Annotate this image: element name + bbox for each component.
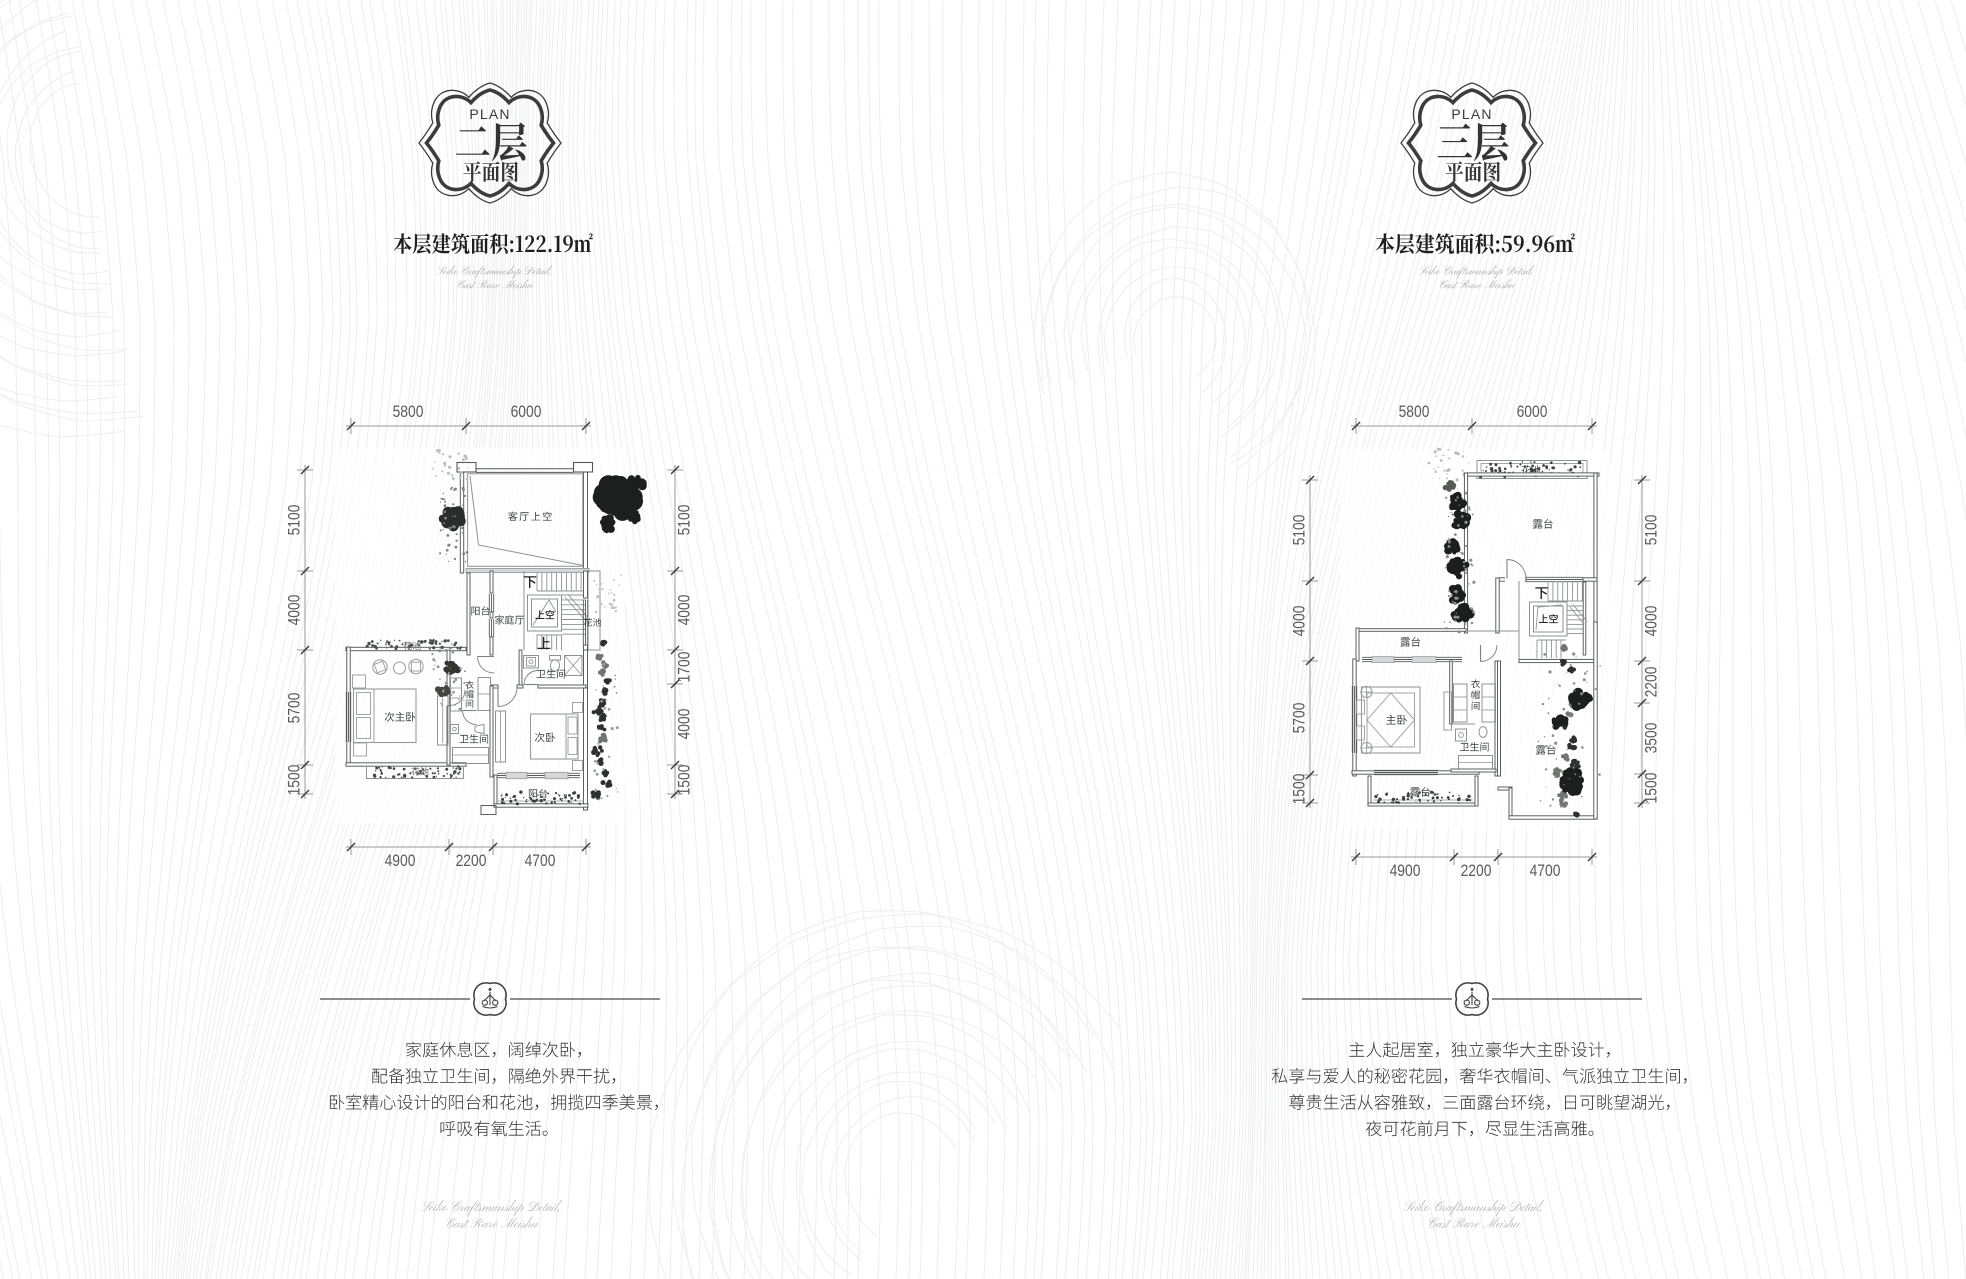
svg-text:4900: 4900: [385, 852, 416, 870]
svg-text:4700: 4700: [1530, 862, 1561, 880]
svg-text:5100: 5100: [285, 505, 303, 536]
svg-text:5100: 5100: [1642, 515, 1660, 546]
svg-text:5700: 5700: [285, 693, 303, 724]
svg-text:PLAN: PLAN: [469, 106, 510, 122]
svg-text:1500: 1500: [1290, 774, 1308, 805]
svg-text:1700: 1700: [675, 652, 693, 683]
svg-text:1500: 1500: [1642, 773, 1660, 804]
svg-text:4000: 4000: [1642, 606, 1660, 637]
svg-text:4000: 4000: [675, 709, 693, 740]
svg-text:4000: 4000: [1290, 606, 1308, 637]
svg-text:1500: 1500: [675, 765, 693, 796]
svg-text:5800: 5800: [393, 403, 424, 421]
svg-text:4000: 4000: [675, 595, 693, 626]
svg-text:5100: 5100: [1290, 515, 1308, 546]
svg-text:2200: 2200: [456, 852, 487, 870]
svg-text:1500: 1500: [285, 765, 303, 796]
svg-text:5700: 5700: [1290, 703, 1308, 734]
svg-text:5800: 5800: [1399, 403, 1430, 421]
svg-text:4900: 4900: [1390, 862, 1421, 880]
svg-text:6000: 6000: [1517, 403, 1548, 421]
svg-text:3500: 3500: [1642, 723, 1660, 754]
svg-text:4700: 4700: [525, 852, 556, 870]
svg-text:5100: 5100: [675, 505, 693, 536]
svg-text:PLAN: PLAN: [1451, 106, 1492, 122]
svg-text:2200: 2200: [1642, 667, 1660, 698]
svg-text:2200: 2200: [1461, 862, 1492, 880]
svg-text:4000: 4000: [285, 595, 303, 626]
svg-text:6000: 6000: [511, 403, 542, 421]
